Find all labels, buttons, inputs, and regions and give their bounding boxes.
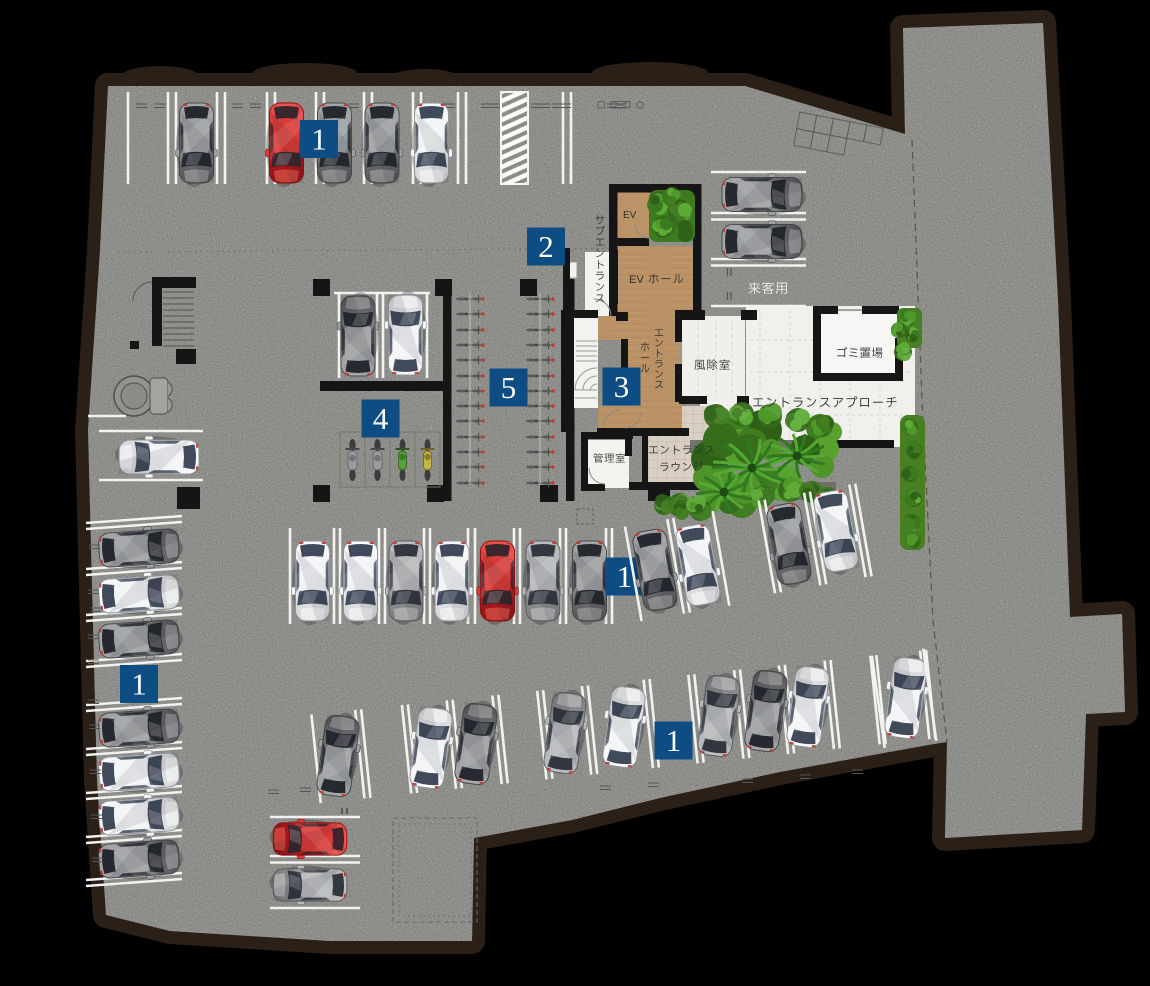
svg-text:1: 1 bbox=[666, 723, 682, 758]
svg-text:2: 2 bbox=[538, 229, 554, 264]
svg-text:1: 1 bbox=[311, 122, 327, 157]
svg-text:1: 1 bbox=[617, 559, 633, 594]
svg-text:1: 1 bbox=[131, 667, 147, 702]
svg-text:EV: EV bbox=[629, 274, 644, 286]
svg-text:4: 4 bbox=[373, 401, 389, 436]
svg-text:3: 3 bbox=[614, 369, 630, 404]
svg-text:EV: EV bbox=[623, 210, 637, 221]
svg-text:5: 5 bbox=[501, 370, 517, 405]
